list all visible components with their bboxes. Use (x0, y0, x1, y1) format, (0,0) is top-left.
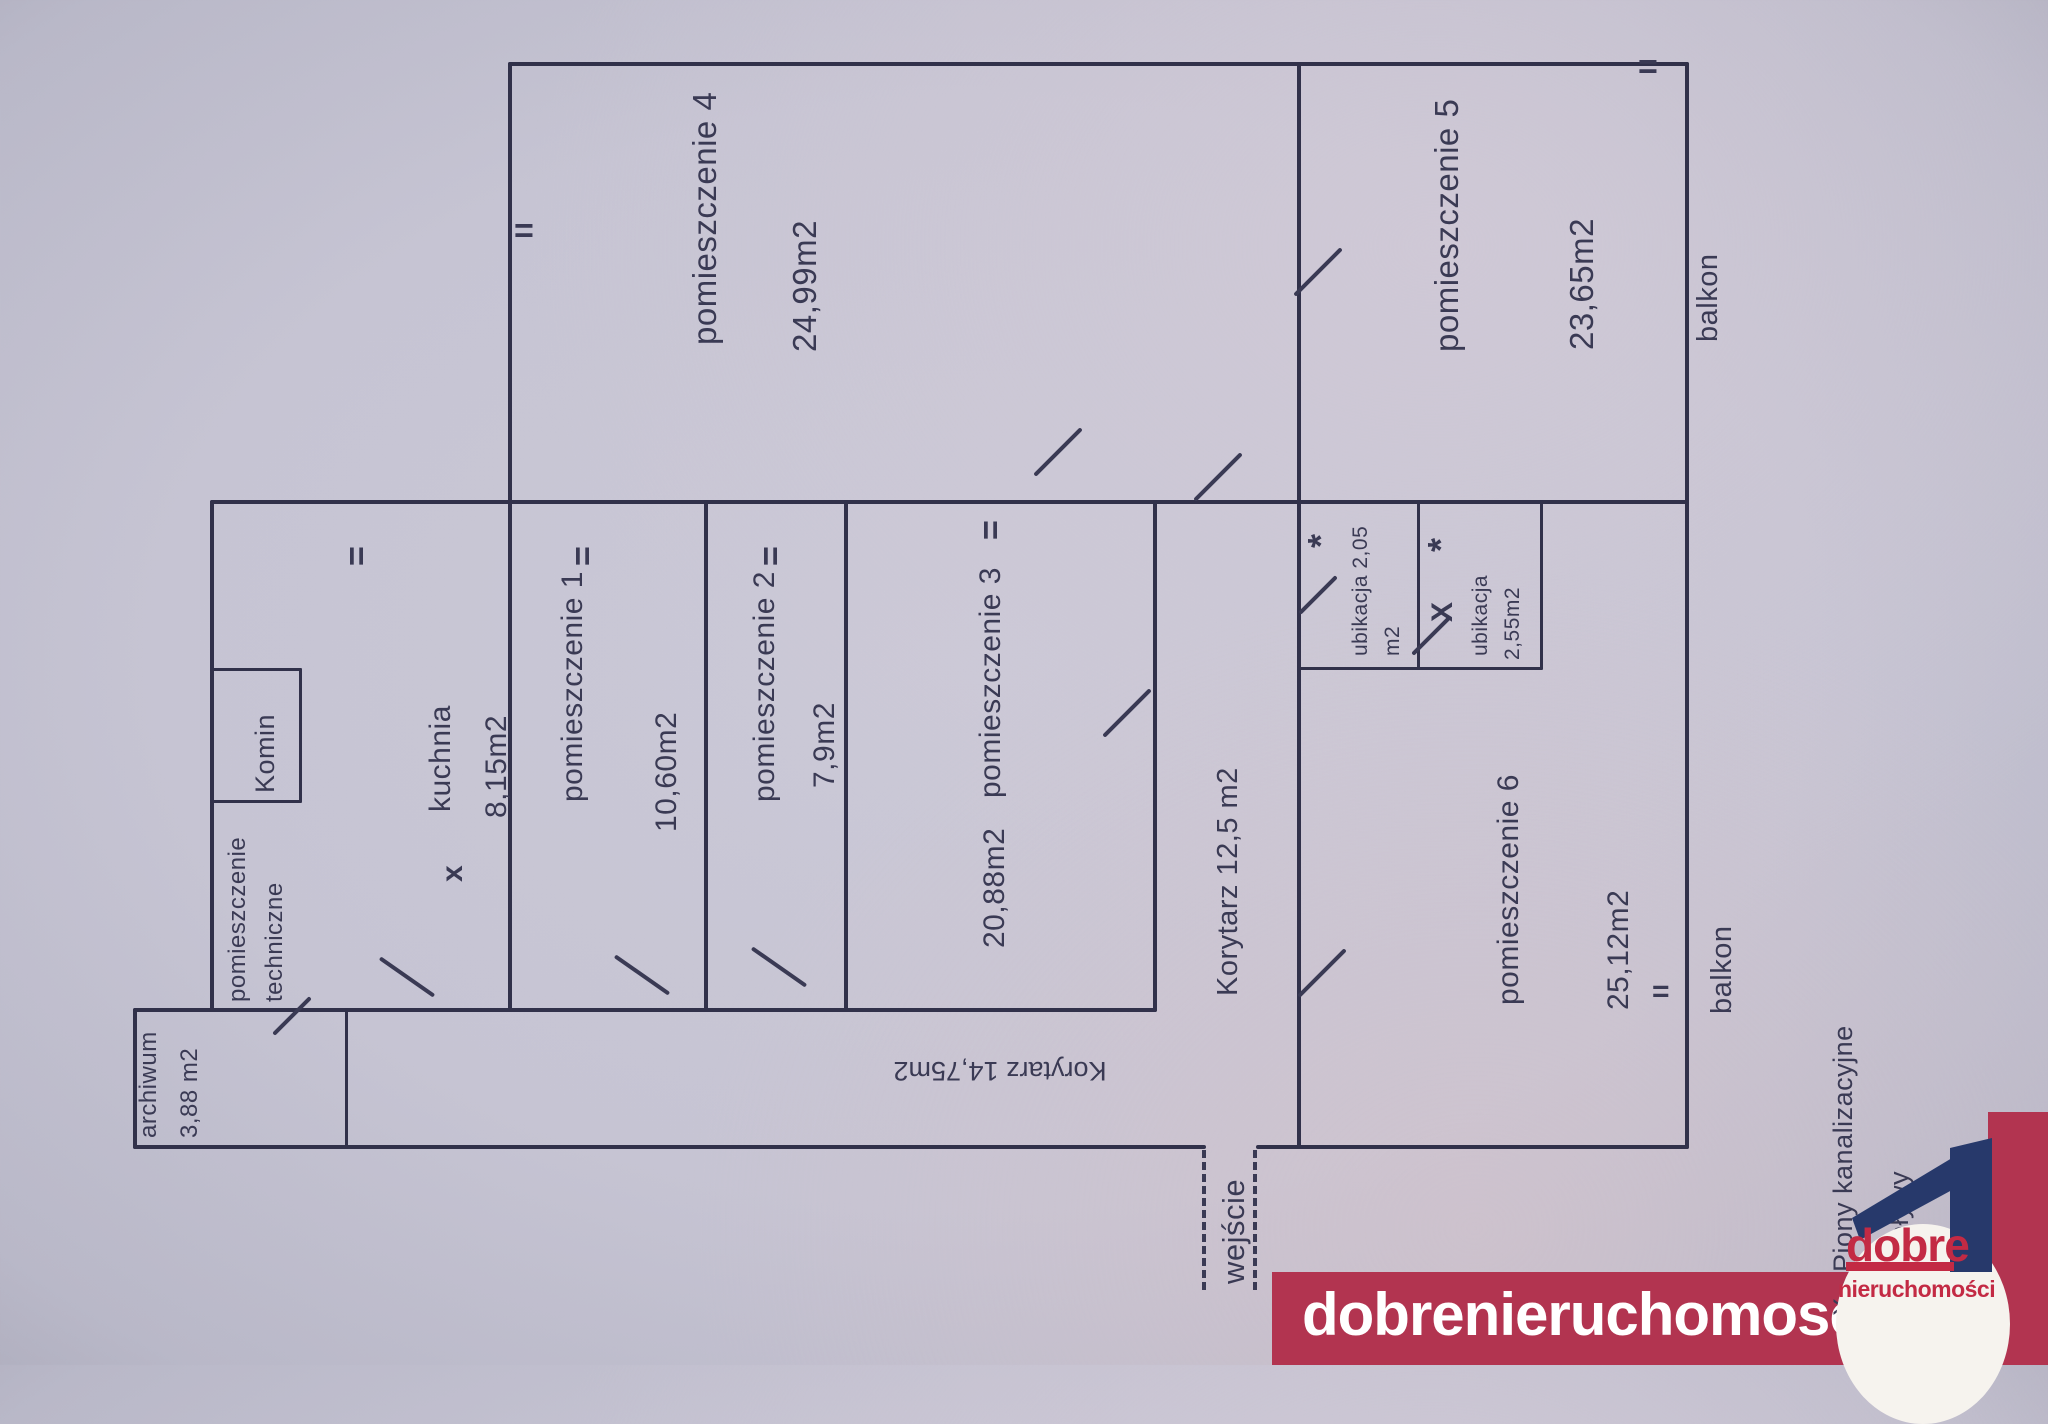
label-pom5-area: 23,65m2 (1563, 218, 1601, 350)
label-pom2-area: 7,9m2 (808, 702, 842, 788)
riser-x-ubikacja2: X (1426, 601, 1460, 622)
window-icon-pom5: = (1638, 48, 1658, 87)
label-pom-techniczne-line1: pomieszczenie (224, 837, 252, 1002)
entrance-dashed-left (1202, 1150, 1206, 1290)
label-balkon-top: balkon (1692, 254, 1725, 342)
drain-asterisk-ubikacja2: * (1420, 537, 1462, 552)
wall-ubikacja-bottom (1297, 667, 1543, 670)
logo-underline (1846, 1262, 1954, 1271)
label-pom4-area: 24,99m2 (786, 220, 824, 352)
entrance-dashed-right (1253, 1150, 1257, 1290)
label-ubikacja2-line2: 2,55m2 (1501, 587, 1525, 660)
wall-pom4-pom5 (1297, 62, 1301, 1149)
logo-text-nieruchomosci: nieruchomości (1838, 1276, 2002, 1303)
door-icon-pom6 (1297, 948, 1346, 997)
wall-komin-bottom (210, 800, 302, 803)
wall-ubikacja-right (1540, 500, 1543, 670)
wall-bottom-right (1256, 1145, 1689, 1149)
riser-x-kuchnia: x (436, 865, 470, 882)
label-pom5: pomieszczenie 5 (1428, 99, 1466, 352)
wall-komin-right (299, 668, 302, 803)
door-icon-pom4-pom3 (1033, 427, 1082, 476)
wall-pom1-pom2 (704, 500, 708, 1012)
label-ubikacja2-line1: ubikacja (1469, 575, 1493, 656)
wall-mid-horizontal (210, 500, 1689, 504)
label-korytarz-poziomy: Korytarz 14,75m2 (870, 1055, 1130, 1086)
label-pom6-area: 25,12m2 (1602, 890, 1636, 1010)
door-icon-pom4-corridor (1193, 452, 1242, 501)
door-icon-ubikacja1 (1298, 575, 1338, 615)
wall-techniczne-left (210, 500, 214, 1012)
door-icon-pom2 (751, 946, 807, 987)
label-pom1-area: 10,60m2 (650, 712, 684, 832)
label-pom4: pomieszczenie 4 (686, 92, 724, 345)
label-archiwum: archiwum (135, 1031, 163, 1138)
wall-komin-top (210, 668, 302, 671)
wall-archiwum-divider (345, 1008, 348, 1149)
label-wejscie: wejście (1216, 1179, 1252, 1284)
window-icon-pom1: = (564, 546, 603, 566)
label-pom6: pomieszczenie 6 (1492, 774, 1526, 1005)
door-icon-archiwum (272, 996, 312, 1036)
wall-pom4-left (508, 62, 512, 1012)
label-korytarz-pionowy: Korytarz 12,5 m2 (1212, 767, 1245, 996)
label-ubikacja1-line2: m2 (1381, 626, 1405, 656)
label-kuchnia-area: 8,15m2 (480, 715, 514, 818)
label-pom1: pomieszczenie 1 (556, 571, 590, 802)
window-icon-pom2: = (752, 546, 791, 566)
label-pom3: pomieszczenie 3 (974, 567, 1008, 798)
window-icon-pom6: = (1652, 975, 1670, 1009)
label-kuchnia: kuchnia (424, 705, 458, 812)
wall-corridor-top (133, 1008, 1157, 1012)
window-icon-pom3: = (972, 520, 1011, 540)
label-komin: Komin (250, 714, 281, 793)
floor-plan: pomieszczenie techniczne Komin kuchnia 8… (0, 0, 2048, 1365)
door-icon-pom3 (1102, 688, 1151, 737)
wall-pom2-pom3 (844, 500, 848, 1012)
label-balkon-bottom: balkon (1706, 926, 1739, 1014)
door-icon-pom1 (614, 954, 670, 995)
wall-bottom-left (133, 1145, 1206, 1149)
label-pom-techniczne-line2: techniczne (261, 882, 289, 1002)
label-ubikacja1-line1: ubikacja 2,05 (1349, 526, 1373, 656)
label-pom3-area: 20,88m2 (978, 828, 1012, 948)
window-icon-kuchnia: = (338, 546, 377, 566)
label-pom2: pomieszczenie 2 (748, 571, 782, 802)
door-icon-kuchnia (379, 956, 435, 997)
window-icon-pom4: = (514, 212, 534, 251)
wall-right (1685, 62, 1689, 1149)
wall-top (508, 62, 1689, 66)
drain-asterisk-ubikacja1: * (1300, 533, 1342, 548)
wall-pom3-right (1153, 500, 1157, 1012)
label-archiwum-area: 3,88 m2 (176, 1048, 204, 1138)
